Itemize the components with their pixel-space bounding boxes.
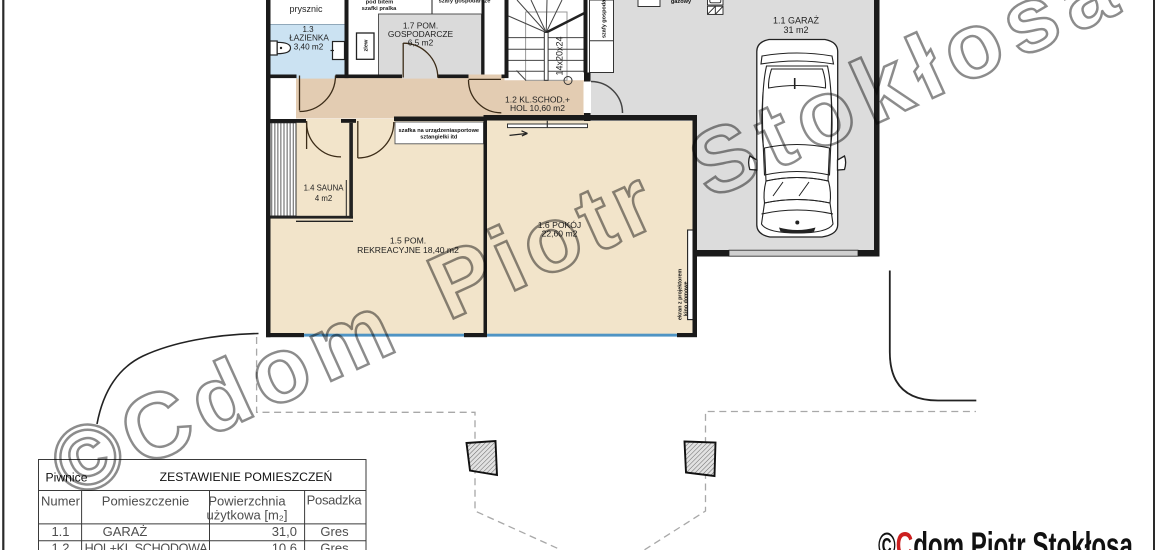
svg-text:szafki pralka: szafki pralka <box>362 6 398 12</box>
svg-text:4 m2: 4 m2 <box>315 194 332 203</box>
svg-text:3,40 m2: 3,40 m2 <box>294 42 324 51</box>
svg-text:GARAŻ: GARAŻ <box>103 524 148 539</box>
svg-text:HOL+KL.SCHODOWA: HOL+KL.SCHODOWA <box>85 542 209 550</box>
svg-text:1.2: 1.2 <box>51 541 69 550</box>
svg-text:sztangielki itd: sztangielki itd <box>420 135 458 141</box>
svg-text:szafka na urządzeniasportowe: szafka na urządzeniasportowe <box>399 128 480 134</box>
svg-text:ZESTAWIENIE POMIESZCZEŃ: ZESTAWIENIE POMIESZCZEŃ <box>160 469 333 484</box>
svg-text:szafy gospodarcze: szafy gospodarcze <box>439 0 492 5</box>
svg-text:użytkowa [m₂]: użytkowa [m₂] <box>207 508 288 523</box>
svg-text:szafy gospodar: szafy gospodar <box>602 0 608 38</box>
svg-text:©Cdom Piotr Stokłosa: ©Cdom Piotr Stokłosa <box>878 526 1134 550</box>
svg-text:gazowy: gazowy <box>671 0 692 5</box>
svg-text:31,0: 31,0 <box>272 524 297 539</box>
svg-text:Gres: Gres <box>320 524 349 539</box>
svg-text:pod bitem: pod bitem <box>366 0 394 5</box>
svg-text:10,6: 10,6 <box>272 541 297 550</box>
svg-text:Powierzchnia: Powierzchnia <box>208 494 286 509</box>
svg-text:zlew: zlew <box>364 39 370 51</box>
svg-text:Posadzka: Posadzka <box>307 493 363 508</box>
svg-text:14x20x24: 14x20x24 <box>555 36 565 75</box>
svg-text:HOL 10,60 m2: HOL 10,60 m2 <box>510 103 565 113</box>
svg-text:Gres: Gres <box>320 541 349 550</box>
svg-text:ŁAZIENKA: ŁAZIENKA <box>289 33 329 42</box>
svg-text:6,5 m2: 6,5 m2 <box>408 37 434 47</box>
svg-text:kino domowe: kino domowe <box>684 282 690 316</box>
svg-text:31 m2: 31 m2 <box>783 25 808 35</box>
svg-text:1.4 SAUNA: 1.4 SAUNA <box>304 184 345 193</box>
svg-text:prysznic: prysznic <box>289 4 323 14</box>
svg-text:1.1: 1.1 <box>51 524 69 539</box>
